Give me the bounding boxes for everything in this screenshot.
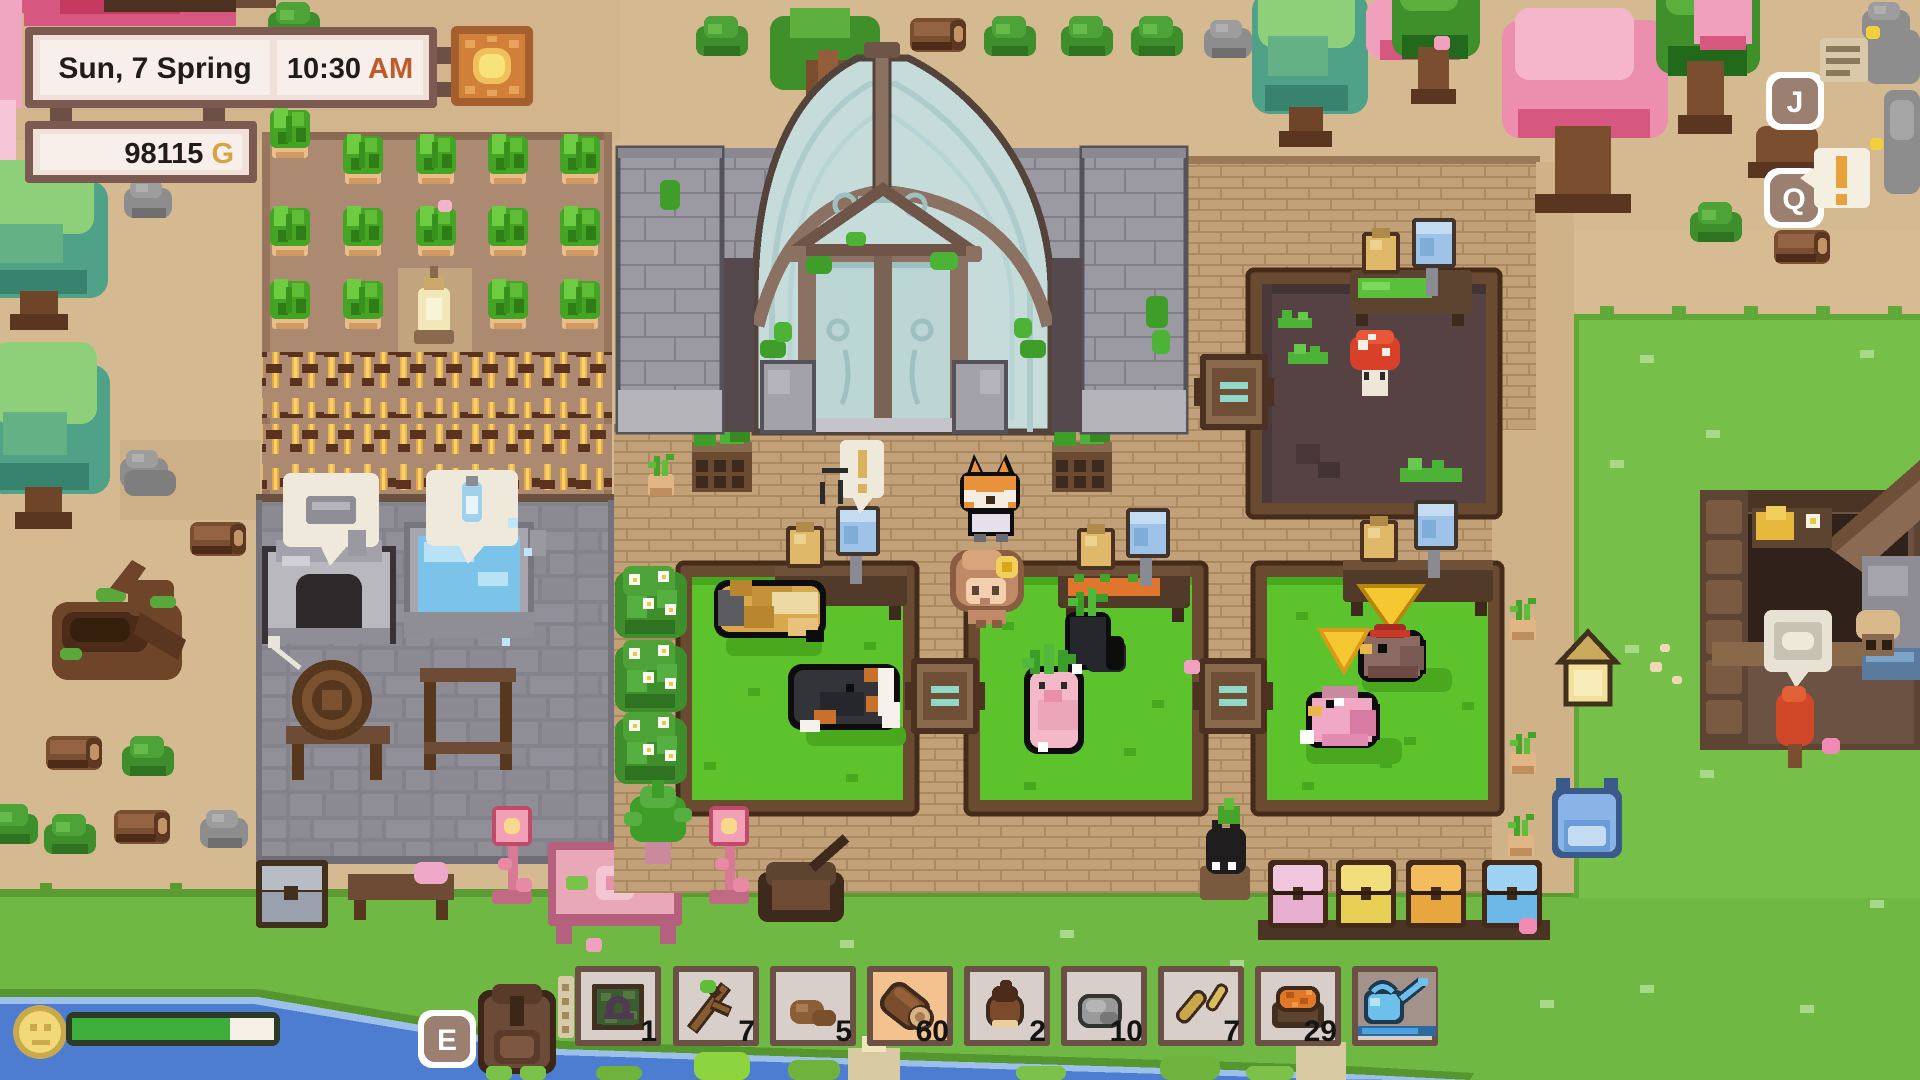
svg-text:98115 G: 98115 G [124,138,234,170]
svg-text:E: E [437,1024,457,1057]
svg-text:2: 2 [1029,1015,1046,1048]
svg-text:7: 7 [738,1015,755,1048]
svg-text:Sun, 7 Spring: Sun, 7 Spring [58,52,251,85]
svg-text:10:30 AM: 10:30 AM [287,53,413,85]
svg-text:10: 10 [1110,1015,1143,1048]
svg-text:29: 29 [1304,1015,1337,1048]
svg-text:60: 60 [916,1015,949,1048]
svg-text:Q: Q [1782,183,1805,216]
svg-text:5: 5 [835,1015,852,1048]
svg-text:7: 7 [1223,1015,1240,1048]
svg-text:1: 1 [640,1015,657,1048]
svg-text:J: J [1787,86,1804,119]
